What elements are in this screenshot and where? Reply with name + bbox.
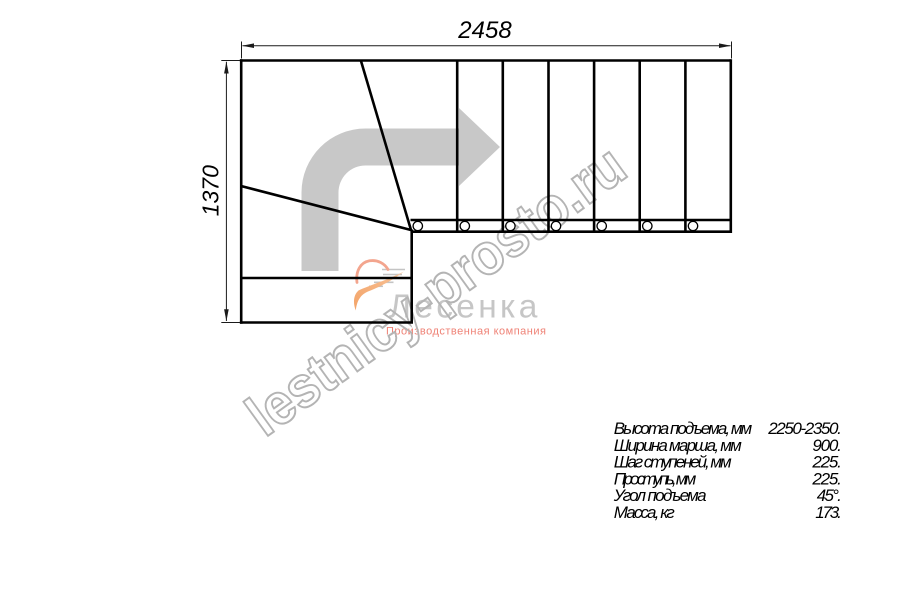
svg-text:2458: 2458 — [457, 17, 512, 44]
svg-text:1370: 1370 — [198, 165, 224, 216]
svg-text:Масса, кг: Масса, кг — [614, 503, 675, 522]
svg-text:173.: 173. — [815, 503, 842, 522]
svg-text:lestnicy-prosto.ru: lestnicy-prosto.ru — [235, 133, 638, 449]
